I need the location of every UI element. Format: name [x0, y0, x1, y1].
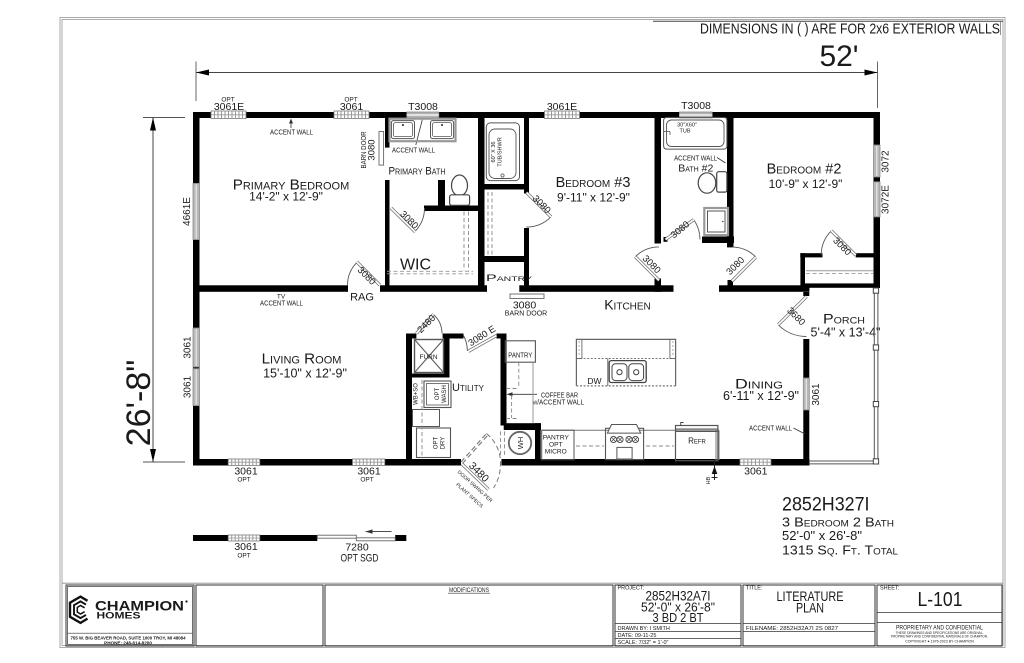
svg-text:3061E: 3061E — [214, 101, 244, 113]
svg-text:Primary Bath: Primary Bath — [389, 166, 446, 178]
svg-text:WB+SO: WB+SO — [414, 383, 420, 405]
svg-text:14'-2" x 12'-9": 14'-2" x 12'-9" — [249, 190, 323, 204]
svg-text:Porch: Porch — [823, 312, 865, 327]
svg-text:COPYRIGHT ● 1976-2023 BY CHAMP: COPYRIGHT ● 1976-2023 BY CHAMPION — [905, 639, 974, 643]
svg-text:3061: 3061 — [183, 336, 194, 359]
svg-text:PHONE: 248-614-8200: PHONE: 248-614-8200 — [104, 640, 152, 645]
svg-text:TITLE:: TITLE: — [746, 586, 763, 592]
svg-text:3061: 3061 — [744, 466, 768, 478]
svg-text:BARN DOOR: BARN DOOR — [505, 311, 547, 318]
svg-text:TUB/SHWR: TUB/SHWR — [498, 137, 504, 166]
svg-text:DATE: 09-11-25: DATE: 09-11-25 — [618, 633, 657, 639]
svg-text:T3008: T3008 — [681, 100, 711, 112]
svg-text:Kitchen: Kitchen — [604, 297, 651, 313]
svg-text:3061: 3061 — [811, 383, 822, 406]
svg-text:HB: HB — [706, 476, 712, 484]
svg-text:3072E: 3072E — [881, 185, 892, 214]
svg-text:SHEET:: SHEET: — [880, 586, 900, 592]
svg-text:PROPRIETARY AND CONFIDENTIAL M: PROPRIETARY AND CONFIDENTIAL MATERIALS O… — [891, 634, 988, 638]
svg-text:DRAWN BY: I SMITH: DRAWN BY: I SMITH — [618, 626, 670, 632]
svg-text:DW: DW — [587, 376, 601, 386]
svg-text:10'-9" x 12'-9": 10'-9" x 12'-9" — [769, 177, 843, 191]
svg-text:HOMES: HOMES — [97, 611, 141, 622]
svg-text:3061: 3061 — [234, 541, 258, 553]
svg-text:52': 52' — [819, 40, 858, 73]
svg-text:3061E: 3061E — [547, 101, 577, 113]
svg-text:ACCENT WALL: ACCENT WALL — [674, 156, 717, 163]
svg-text:ACCENT WALL: ACCENT WALL — [270, 130, 313, 137]
svg-text:3080: 3080 — [367, 139, 378, 160]
svg-text:TV: TV — [277, 294, 286, 301]
svg-text:3061: 3061 — [340, 101, 364, 113]
svg-text:Utility: Utility — [452, 382, 485, 394]
svg-text:SCALE: 7/32" = 1'-0": SCALE: 7/32" = 1'-0" — [618, 640, 669, 646]
svg-text:FURN: FURN — [419, 354, 437, 361]
svg-text:PLAN: PLAN — [796, 600, 824, 616]
svg-text:6'-11" x 12'-9": 6'-11" x 12'-9" — [723, 389, 799, 403]
svg-text:OPT: OPT — [237, 477, 250, 484]
svg-text:DIMENSIONS IN ( ) ARE FOR 2x6: DIMENSIONS IN ( ) ARE FOR 2x6 EXTERIOR W… — [700, 22, 1000, 38]
svg-text:T3008: T3008 — [408, 101, 438, 113]
svg-text:Living Room: Living Room — [262, 351, 342, 368]
svg-text:TUB: TUB — [680, 129, 691, 135]
svg-text:26'-8": 26'-8" — [120, 360, 158, 447]
svg-text:OPT: OPT — [237, 553, 250, 560]
svg-text:COFFEE BAR: COFFEE BAR — [541, 393, 578, 400]
svg-text:3 BD 2 BT: 3 BD 2 BT — [653, 610, 704, 625]
svg-text:OPT: OPT — [549, 442, 563, 449]
svg-text:OPT: OPT — [434, 437, 440, 450]
svg-text:52'-0" x 26'-8": 52'-0" x 26'-8" — [782, 528, 862, 543]
svg-text:ACCENT WALL: ACCENT WALL — [392, 148, 435, 155]
svg-text:OPT: OPT — [360, 477, 373, 484]
svg-text:2852H327I: 2852H327I — [782, 494, 870, 516]
svg-text:DRY: DRY — [441, 437, 447, 450]
svg-text:Bedroom #2: Bedroom #2 — [767, 162, 842, 178]
svg-text:MICRO: MICRO — [545, 449, 567, 456]
svg-text:1315 Sq. Ft. Total: 1315 Sq. Ft. Total — [782, 543, 898, 558]
svg-text:OPT: OPT — [435, 388, 441, 401]
svg-text:3061: 3061 — [183, 375, 194, 398]
svg-text:WASH: WASH — [442, 385, 448, 403]
svg-text:5'-4" x 13'-4": 5'-4" x 13'-4" — [811, 326, 881, 340]
svg-text:Refr: Refr — [688, 437, 706, 446]
svg-text:PANTRY: PANTRY — [543, 435, 570, 442]
svg-text:PANTRY: PANTRY — [508, 351, 532, 360]
svg-text:9'-11" x 12'-9": 9'-11" x 12'-9" — [557, 191, 630, 205]
svg-text:L-101: L-101 — [918, 588, 963, 611]
svg-text:w/ACCENT WALL: w/ACCENT WALL — [533, 400, 584, 407]
svg-text:60" X 36: 60" X 36 — [491, 142, 497, 163]
svg-text:OPT SGD: OPT SGD — [341, 553, 379, 565]
svg-text:3072: 3072 — [881, 150, 892, 173]
svg-text:ACCENT WALL: ACCENT WALL — [260, 301, 303, 308]
svg-text:4661E: 4661E — [182, 197, 193, 226]
svg-text:PROJECT:: PROJECT: — [618, 586, 645, 592]
svg-text:FILENAME: 2852H32A7I 2S 0827: FILENAME: 2852H32A7I 2S 0827 — [746, 626, 838, 632]
svg-text:ACCENT WALL: ACCENT WALL — [749, 426, 792, 433]
svg-text:Bedroom #3: Bedroom #3 — [556, 175, 631, 191]
svg-text:Pantry: Pantry — [486, 273, 532, 283]
svg-text:RAG: RAG — [350, 292, 374, 304]
svg-text:15'-10" x 12'-9": 15'-10" x 12'-9" — [263, 367, 347, 381]
svg-text:WH: WH — [516, 437, 525, 450]
